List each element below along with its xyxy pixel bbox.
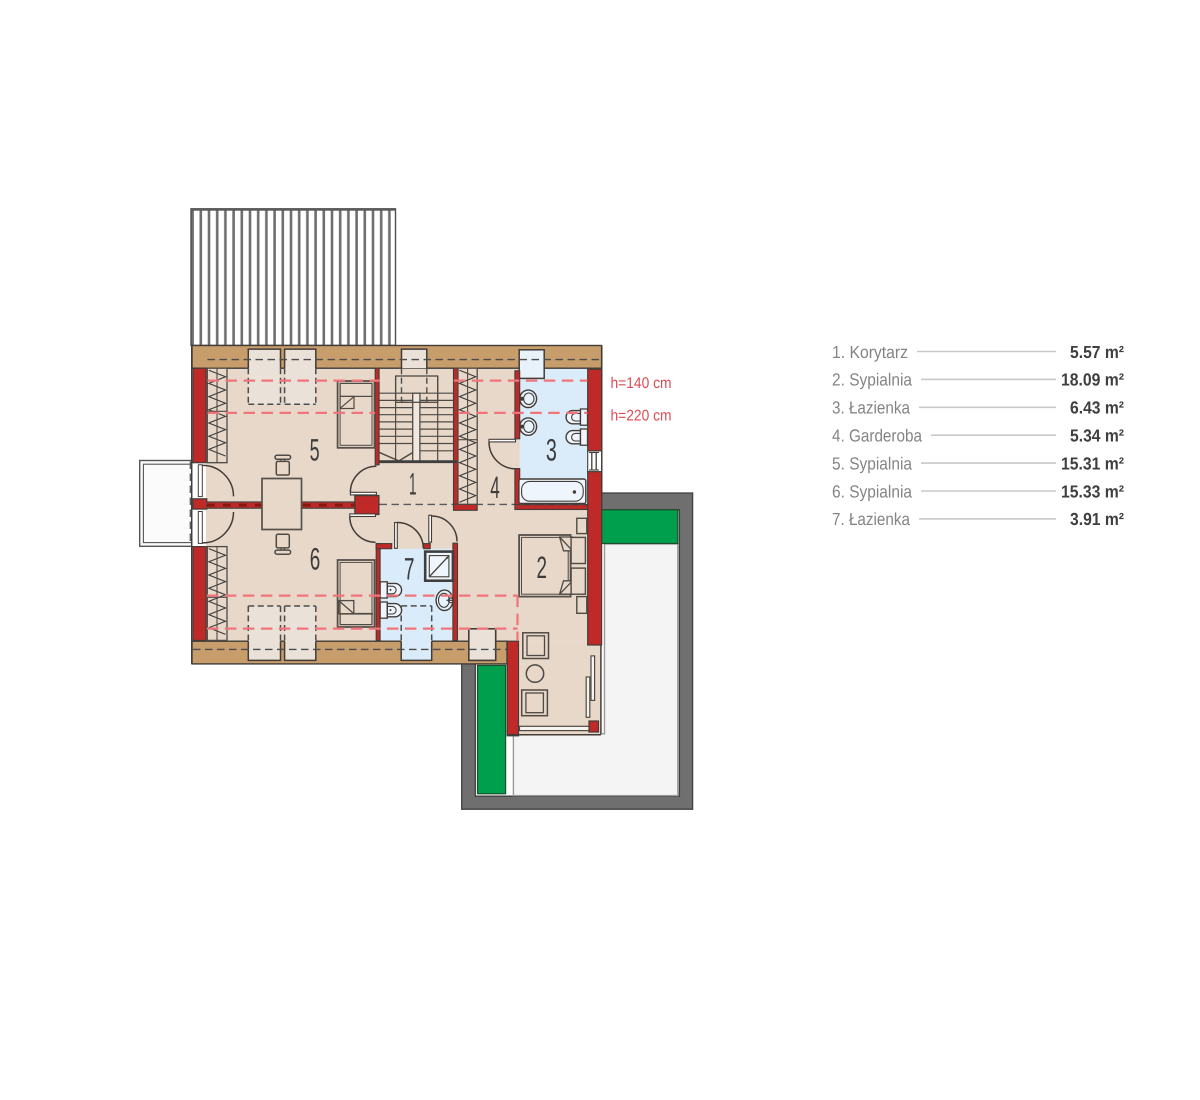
svg-text:18.09 m²: 18.09 m² <box>1061 370 1124 390</box>
svg-text:1. Korytarz: 1. Korytarz <box>832 342 908 362</box>
svg-text:5. Sypialnia: 5. Sypialnia <box>832 453 912 473</box>
svg-text:15.33 m²: 15.33 m² <box>1061 481 1124 501</box>
svg-text:h=140 cm: h=140 cm <box>611 375 672 392</box>
svg-text:6.43 m²: 6.43 m² <box>1070 398 1124 418</box>
svg-text:3: 3 <box>546 433 557 468</box>
svg-text:3.91 m²: 3.91 m² <box>1070 509 1124 529</box>
svg-text:5: 5 <box>310 432 320 467</box>
svg-text:2. Sypialnia: 2. Sypialnia <box>832 370 912 390</box>
svg-text:h=220 cm: h=220 cm <box>611 408 672 425</box>
svg-text:2: 2 <box>536 550 547 585</box>
svg-text:3. Łazienka: 3. Łazienka <box>832 398 910 418</box>
svg-text:5.57 m²: 5.57 m² <box>1070 342 1124 362</box>
svg-text:4: 4 <box>490 470 500 505</box>
svg-text:5.34 m²: 5.34 m² <box>1070 426 1124 446</box>
svg-text:4. Garderoba: 4. Garderoba <box>832 426 922 446</box>
svg-text:6. Sypialnia: 6. Sypialnia <box>832 481 912 501</box>
svg-text:7: 7 <box>404 552 415 587</box>
svg-text:7. Łazienka: 7. Łazienka <box>832 509 910 529</box>
svg-text:1: 1 <box>409 467 417 502</box>
svg-text:15.31 m²: 15.31 m² <box>1061 453 1124 473</box>
svg-text:6: 6 <box>310 541 321 576</box>
